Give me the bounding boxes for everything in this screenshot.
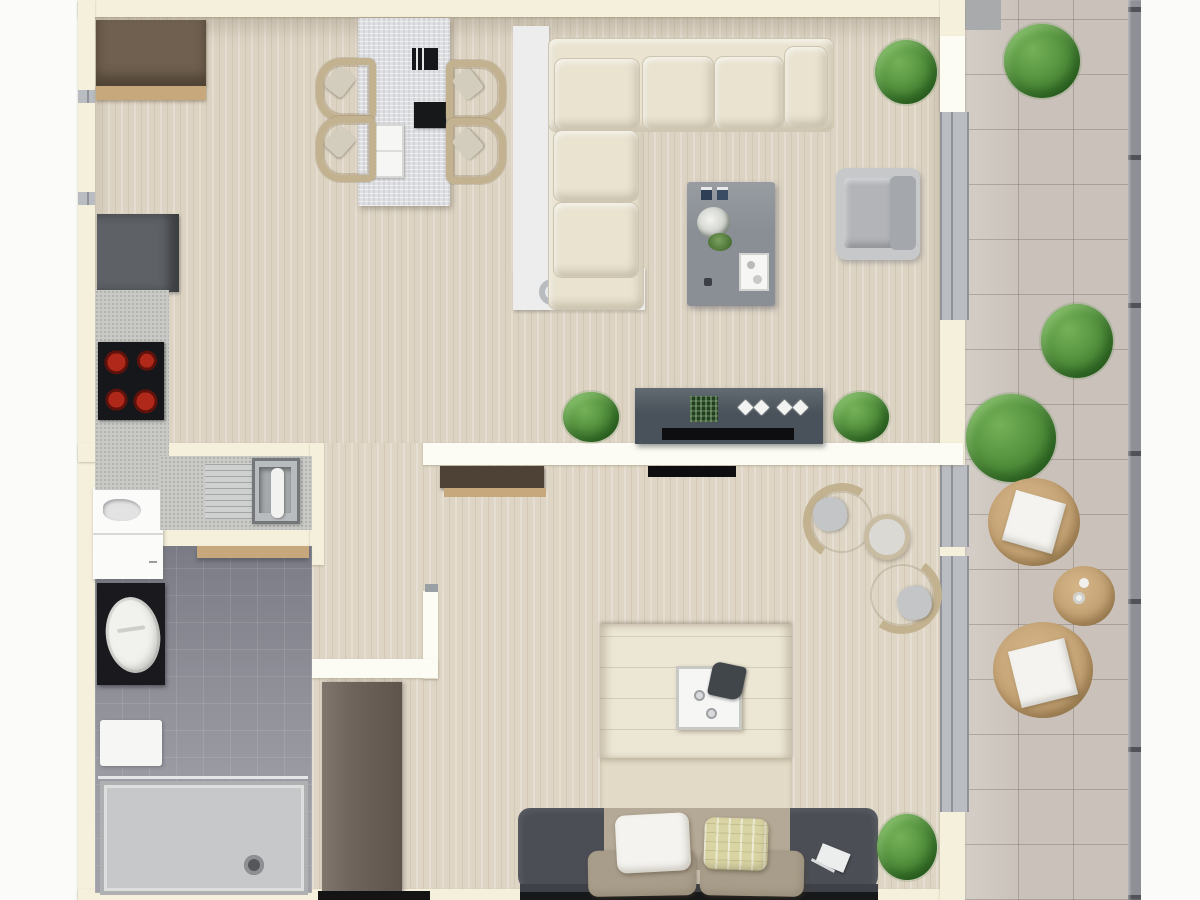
- vanity-sink: [93, 487, 163, 579]
- terrace-bush-middle: [1041, 304, 1113, 378]
- chair-pillow: [451, 127, 485, 161]
- towel-rail: [197, 546, 309, 558]
- wardrobe-base: [318, 891, 430, 900]
- patterned-pillow: [703, 817, 769, 871]
- sideboard-art-square: [690, 396, 718, 422]
- shower-glass-line: [98, 776, 308, 779]
- bedroom-window-lower: [940, 556, 969, 812]
- bed-duvet-band: [600, 758, 792, 810]
- table-plant-greenery: [708, 233, 732, 251]
- round-side-table: [864, 514, 910, 560]
- vanity-divider: [93, 533, 163, 535]
- sofa-arm-right: [784, 46, 828, 128]
- vanity-basin-sketch: [103, 499, 141, 521]
- bath-mat: [100, 720, 162, 766]
- bathroom-east-wall: [310, 443, 324, 565]
- table-cup-1: [1079, 578, 1089, 588]
- terrace-bush-large: [966, 394, 1056, 482]
- plant-right-of-sideboard: [833, 392, 889, 442]
- dining-chair-nw: [316, 58, 376, 122]
- terrace-railing: [1128, 0, 1141, 900]
- floor-plan-canvas: [0, 0, 1200, 900]
- right-wall-highlight: [940, 36, 965, 112]
- shower-drain: [244, 855, 264, 875]
- tray-item-dot: [747, 261, 755, 269]
- kitchen-base-cabinet: [97, 214, 179, 292]
- sofa-chaise-cushion-1: [553, 130, 639, 202]
- bed-base-shadow: [520, 892, 878, 900]
- bedroom-plant: [877, 814, 937, 880]
- terrace-corner-block: [963, 0, 1001, 30]
- living-window: [940, 112, 969, 320]
- dining-black-tray: [412, 48, 438, 70]
- teacup-1: [694, 690, 705, 701]
- cooktop: [98, 342, 164, 420]
- toilet-seat-line: [117, 625, 145, 633]
- chair-cushion: [895, 583, 934, 622]
- candle-2: [717, 187, 728, 200]
- chair-cushion: [810, 494, 850, 534]
- sofa-back-cushion-1: [642, 56, 714, 130]
- corridor-horizontal-wall: [310, 659, 438, 678]
- coffee-table-speck: [704, 278, 712, 286]
- left-wall-window-1: [78, 90, 95, 103]
- chair-pillow: [323, 125, 357, 159]
- dining-laptop: [414, 102, 446, 128]
- candle-1: [701, 187, 712, 200]
- dining-chair-ne: [446, 60, 506, 124]
- soundbar: [662, 428, 794, 440]
- kitchen-wood-shelf: [96, 86, 206, 100]
- armchair: [836, 168, 920, 260]
- shower-tray: [100, 781, 308, 895]
- chair-pillow: [323, 65, 356, 99]
- dining-chair-sw: [316, 116, 376, 182]
- top-wall: [78, 0, 963, 17]
- terrace-bush-top: [1004, 24, 1080, 98]
- living-bedroom-wall: [423, 443, 963, 465]
- white-pillow: [615, 812, 692, 874]
- armchair-seat: [844, 178, 896, 248]
- sofa-corner-cushion: [554, 58, 640, 130]
- wardrobe: [322, 682, 402, 893]
- dining-chair-se: [446, 118, 506, 184]
- plant-by-sofa: [875, 40, 937, 104]
- table-cup-2: [1073, 592, 1085, 604]
- sink-drainboard: [205, 463, 253, 519]
- bedroom-window-upper: [940, 465, 969, 547]
- sink-faucet: [271, 468, 284, 518]
- console-shelf-edge: [444, 488, 546, 497]
- door-frame-cap: [425, 584, 438, 592]
- left-wall-window-2: [78, 192, 95, 205]
- sofa-chaise-cushion-2: [553, 202, 639, 278]
- tray-item-dot-2: [753, 275, 762, 284]
- vanity-drawer-handle: [149, 561, 157, 563]
- tray-divider: [372, 150, 402, 152]
- teacup-2: [706, 708, 717, 719]
- armchair-backrest: [890, 176, 916, 250]
- serving-tray: [739, 253, 769, 291]
- console-shelf-top: [440, 466, 544, 488]
- refrigerator-cabinet: [96, 20, 206, 86]
- sofa-back-cushion-2: [714, 56, 784, 130]
- plant-left-of-sideboard: [563, 392, 619, 442]
- bedroom-wall-tv: [648, 466, 736, 477]
- terrace-round-table: [1053, 566, 1115, 626]
- chair-pillow: [451, 67, 484, 101]
